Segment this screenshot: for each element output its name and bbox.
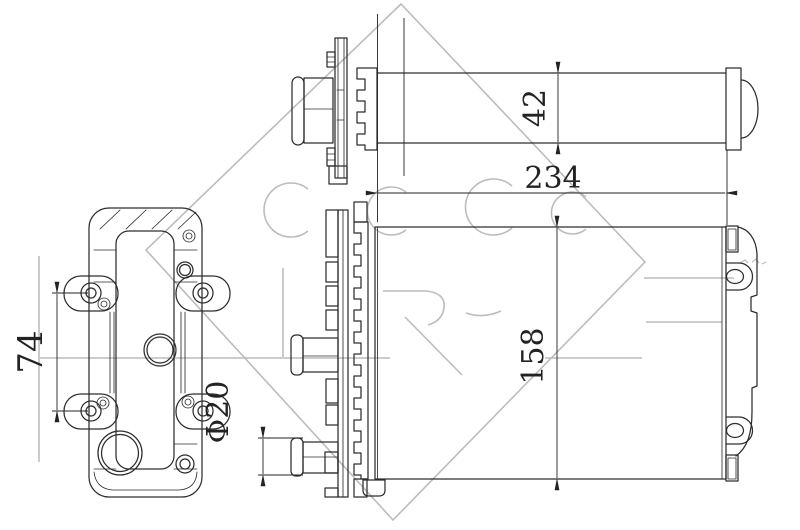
side-view-rivets <box>97 230 195 409</box>
core-bottom-foot <box>363 480 385 496</box>
watermark-arc-1 <box>264 183 308 237</box>
tank-slot-lower <box>726 417 753 444</box>
watermark-swoosh <box>466 311 501 316</box>
side-view-top-ribs <box>94 210 197 282</box>
port-lower-large <box>98 431 142 475</box>
drawing-canvas: 234 158 42 74 Φ20 <box>0 0 800 530</box>
outlet-pipe <box>291 438 338 476</box>
pipe-upper-cap <box>291 335 303 375</box>
watermark-letter-leg <box>405 317 462 375</box>
gasket-serration <box>354 222 368 479</box>
top-view-end-dome <box>741 80 758 138</box>
side-view-inner-bottom <box>94 472 197 490</box>
watermark-arc-2 <box>367 187 406 235</box>
dimension-overall-height: 158 <box>516 228 557 478</box>
dim-pipe-diameter-label: Φ20 <box>201 381 236 444</box>
tank-slot-upper <box>726 263 753 290</box>
pipe-lower-body <box>303 442 338 473</box>
inlet-pipe <box>291 335 338 375</box>
dimension-tank-depth: 42 <box>518 74 558 142</box>
side-view-ports <box>98 262 194 475</box>
dim-overall-height-label: 158 <box>516 327 551 384</box>
watermark-arc-4 <box>551 192 586 234</box>
dimension-pipe-diameter: Φ20 <box>201 381 303 475</box>
dim-hole-spacing-label: 74 <box>11 330 51 373</box>
top-view-pipe-cap <box>292 77 304 145</box>
watermark-letter-fragment-r <box>383 291 444 325</box>
top-view-end-cap <box>726 68 741 150</box>
pipe-upper-body <box>303 338 338 372</box>
port-small-lower <box>176 455 194 473</box>
side-view-inner-face <box>116 231 174 469</box>
tab-hole-upper-right <box>193 283 213 303</box>
side-view-side-ribs <box>94 312 197 469</box>
port-upper <box>144 334 176 366</box>
heater-core-technical-drawing: 234 158 42 74 Φ20 <box>0 0 800 530</box>
top-view-flange-plate <box>335 38 347 178</box>
dimension-overall-length: 234 <box>378 161 725 196</box>
tab-upper-right <box>176 276 230 311</box>
top-view-pipe-body <box>304 78 333 143</box>
right-tank <box>726 226 757 481</box>
watermark-group <box>39 4 766 520</box>
dim-tank-depth-label: 42 <box>518 89 553 127</box>
top-view-gasket-serration <box>357 68 377 150</box>
dim-overall-length-label: 234 <box>524 161 581 196</box>
pipe-lower-cap <box>291 438 303 476</box>
tab-lower-left <box>64 394 118 429</box>
